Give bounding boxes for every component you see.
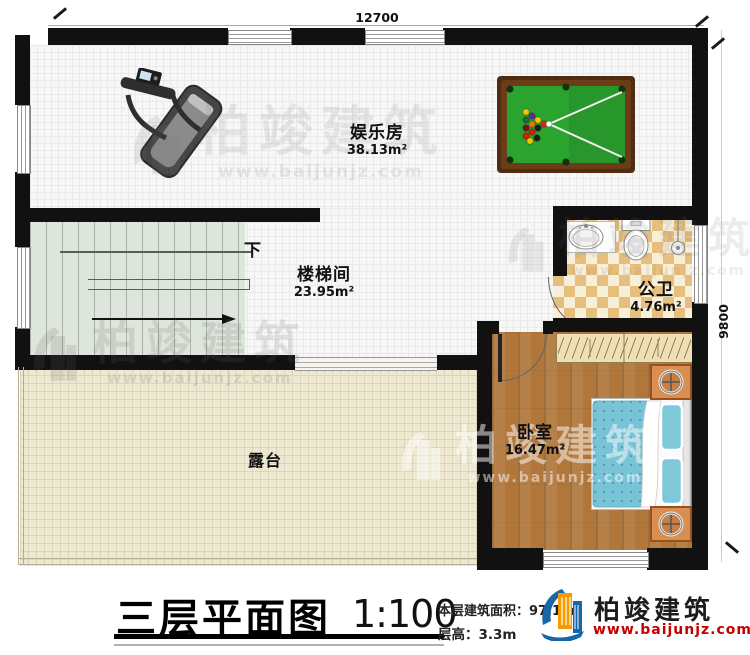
wall (15, 327, 30, 357)
window (543, 552, 649, 568)
room-label-entertainment: 娱乐房 38.13m² (317, 124, 437, 158)
room-name: 露台 (205, 452, 325, 470)
window (17, 105, 31, 174)
wall (553, 206, 567, 276)
bed (591, 398, 691, 510)
room-name: 公卫 (596, 281, 716, 301)
dimension-right: 9800 (716, 304, 731, 339)
wall (290, 28, 365, 45)
stair-direction-arrow (92, 318, 224, 320)
stairs-down-label: 下 (244, 236, 261, 261)
dimension-top: 12700 (327, 10, 427, 25)
wall (477, 548, 543, 570)
terrace-railing (18, 367, 19, 565)
stair-handrail-line (60, 251, 252, 253)
floor-plan-canvas: 柏竣建筑 www.baijunjz.com 柏竣建筑 www.baijunjz.… (0, 0, 750, 655)
floor-height-row: 层高：3.3m (438, 623, 516, 643)
window (17, 247, 31, 329)
plan-title-underline-thin (114, 644, 444, 646)
wall (692, 302, 708, 570)
shower-head (666, 219, 690, 261)
wall (15, 355, 295, 370)
room-area: 16.47m² (475, 444, 595, 459)
wall (437, 355, 477, 370)
wall (15, 35, 30, 105)
stair-arrow-head-icon (222, 314, 236, 324)
room-area: 4.76m² (596, 301, 716, 316)
wall (15, 222, 30, 247)
room-area: 23.95m² (264, 286, 384, 301)
section-tick-icon (53, 7, 67, 20)
window (365, 30, 445, 45)
terrace-railing (18, 564, 477, 565)
floor-height-label: 层高： (438, 627, 479, 643)
room-name: 楼梯间 (264, 266, 384, 286)
bedroom-door-leaf (498, 334, 502, 382)
stair-handrail-slot (88, 279, 250, 290)
room-label-bathroom: 公卫 4.76m² (596, 281, 716, 315)
room-area: 38.13m² (317, 144, 437, 159)
wall (15, 208, 320, 222)
toilet (618, 219, 654, 263)
window (228, 30, 292, 45)
pool-table (497, 76, 635, 173)
section-tick-icon (711, 37, 725, 50)
brand-logo-icon (537, 585, 587, 641)
treadmill (100, 68, 250, 183)
dimension-line-right (721, 30, 722, 562)
wall (443, 28, 702, 45)
room-name: 卧室 (475, 424, 595, 444)
terrace-sliding-door (295, 357, 437, 371)
terrace-railing (18, 558, 477, 559)
sink (560, 221, 616, 253)
wall (647, 548, 708, 570)
dimension-line-top (48, 25, 704, 26)
nightstand-top (650, 364, 692, 400)
stairs-treads (30, 222, 245, 367)
building-area-label: 本层建筑面积： (438, 604, 529, 619)
room-label-terrace: 露台 (205, 452, 325, 470)
wall (553, 318, 708, 332)
room-name: 娱乐房 (317, 124, 437, 144)
section-tick-icon (725, 541, 739, 554)
brand-url: www.baijunjz.com (593, 622, 750, 638)
room-label-stairwell: 楼梯间 23.95m² (264, 266, 384, 300)
floor-height-value: 3.3m (479, 627, 517, 643)
wall (543, 321, 553, 334)
nightstand-bottom (650, 506, 692, 542)
wall (692, 28, 708, 225)
room-label-bedroom: 卧室 16.47m² (475, 424, 595, 458)
wall (553, 206, 708, 220)
wardrobe (556, 333, 693, 363)
wall (48, 28, 228, 45)
wall (15, 172, 30, 208)
terrace-railing (23, 367, 24, 565)
